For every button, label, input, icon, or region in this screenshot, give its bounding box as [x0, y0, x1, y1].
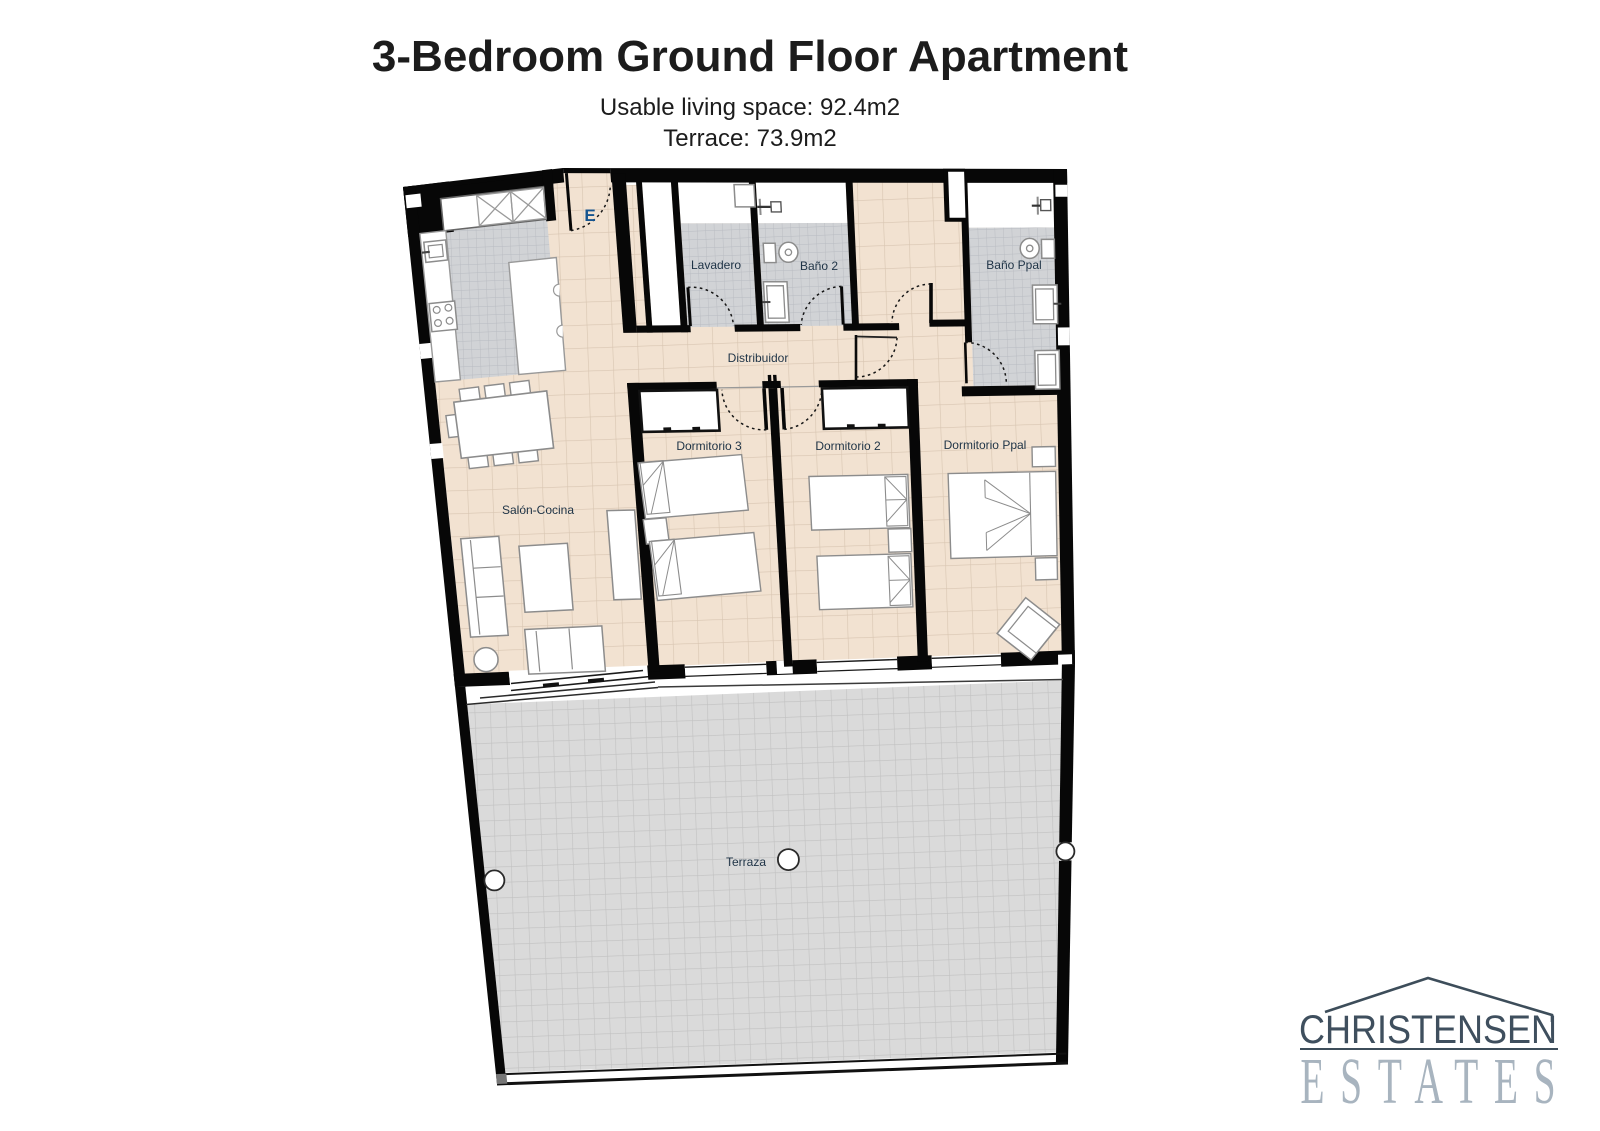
- svg-text:Dormitorio 3: Dormitorio 3: [676, 439, 742, 453]
- svg-text:E: E: [584, 206, 595, 225]
- svg-text:ESTATES: ESTATES: [1300, 1045, 1571, 1118]
- svg-text:Baño Ppal: Baño Ppal: [986, 258, 1041, 272]
- svg-text:Salón-Cocina: Salón-Cocina: [502, 503, 574, 517]
- svg-text:Baño 2: Baño 2: [800, 259, 838, 273]
- svg-text:Lavadero: Lavadero: [691, 258, 741, 272]
- svg-text:Distribuidor: Distribuidor: [728, 351, 789, 365]
- svg-text:Dormitorio Ppal: Dormitorio Ppal: [944, 438, 1027, 452]
- svg-text:Terraza: Terraza: [726, 855, 766, 869]
- svg-text:Dormitorio 2: Dormitorio 2: [815, 439, 881, 453]
